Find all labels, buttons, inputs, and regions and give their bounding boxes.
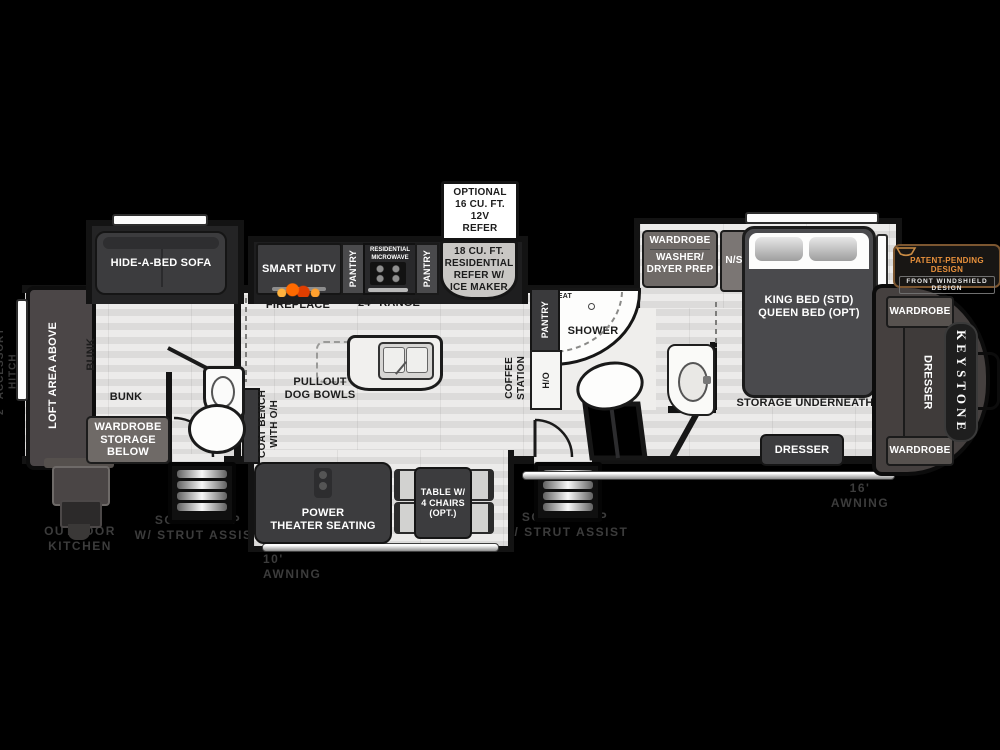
water-heater-label: H/O	[541, 372, 552, 389]
pantry-left-label: PANTRY	[348, 250, 359, 287]
halfbath-toilet-icon	[188, 404, 246, 454]
bedroom-dresser: DRESSER	[760, 434, 844, 466]
storage-underneath-label: STORAGE UNDERNEATH	[730, 397, 880, 410]
optref-line1: OPTIONAL	[453, 187, 506, 199]
bed-line2: QUEEN BED (OPT)	[758, 307, 859, 320]
keystone-logo: KEYSTONE	[944, 322, 978, 442]
optref-line3: 12V	[471, 211, 489, 223]
shower-label: SHOWER	[558, 325, 628, 338]
refrigerator: 18 CU. FT. RESIDENTIAL REFER W/ ICE MAKE…	[440, 240, 518, 300]
table-line3: (OPT.)	[429, 508, 456, 519]
water-heater-box: H/O	[530, 350, 562, 410]
bunk-rear-label: BUNK	[100, 391, 152, 404]
floorplan: LOFT AREA ABOVE 2" ACCESSORY HITCH BUNK …	[0, 0, 1000, 750]
dog-bowls-line2: DOG BOWLS	[285, 389, 356, 402]
table-line1: TABLE W/	[421, 487, 465, 498]
refer-line1: 18 CU. FT.	[454, 246, 504, 258]
dog-bowls-label: PULLOUT DOG BOWLS	[272, 375, 368, 403]
optional-refer-callout: OPTIONAL 16 CU. FT. 12V REFER	[441, 181, 519, 241]
bunk-side-text: BUNK	[85, 338, 98, 371]
bath-pantry-label: PANTRY	[540, 301, 551, 338]
table-line2: 4 CHAIRS	[421, 498, 465, 509]
patent-badge-line2: FRONT WINDSHIELD DESIGN	[899, 276, 995, 294]
fireplace-label: FIREPLACE	[258, 299, 338, 312]
keystone-logo-text: KEYSTONE	[953, 330, 969, 434]
coffee-line2: STATION	[516, 356, 528, 400]
washer-line1: WASHER/	[644, 252, 716, 264]
fireplace-flame-icon	[272, 281, 326, 297]
outdoor-kitchen-nub	[68, 524, 90, 540]
patent-badge: PATENT-PENDING DESIGN FRONT WINDSHIELD D…	[893, 244, 1000, 288]
microwave-line2: MICROWAVE	[371, 255, 408, 261]
theater-line2: THEATER SEATING	[270, 520, 375, 533]
coat-bench-line1: COAT BENCH	[257, 390, 269, 458]
wardrobe-bottom-box: WARDROBE	[886, 436, 954, 466]
awning-16-bar	[522, 471, 895, 480]
optref-line2: 16 CU. FT.	[455, 199, 505, 211]
pantry-right-label: PANTRY	[422, 250, 433, 287]
hide-a-bed-sofa: HIDE-A-BED SOFA	[95, 231, 227, 295]
island-sink-icon	[378, 342, 434, 380]
awning-10-label: 10' AWNING	[263, 552, 343, 582]
range-burners-icon	[370, 262, 406, 285]
sofa-window	[112, 214, 208, 226]
dresser-side-label: DRESSER	[921, 355, 934, 410]
washer-wardrobe-box: WARDROBE WASHER/ DRYER PREP	[642, 230, 718, 288]
theater-line1: POWER	[302, 507, 345, 520]
corner-window	[876, 234, 888, 290]
wardrobe-bottom-label: WARDROBE	[889, 445, 950, 457]
loft-area-label: LOFT AREA ABOVE	[40, 300, 66, 450]
bed-window	[745, 212, 879, 224]
rear-window	[16, 299, 28, 401]
step-right-line2: W/ STRUT ASSIST	[502, 525, 629, 540]
pantry-right: PANTRY	[415, 243, 439, 295]
coat-bench-line2: WITH O/H	[269, 400, 281, 448]
microwave-range: RESIDENTIAL MICROWAVE	[363, 243, 417, 295]
dog-bowls-line1: PULLOUT	[293, 376, 346, 389]
step-left-line2: W/ STRUT ASSIST	[135, 528, 262, 543]
theater-seating: POWER THEATER SEATING	[254, 462, 392, 544]
refer-line4: ICE MAKER	[450, 282, 508, 294]
coffee-station-label: COFFEE STATION	[502, 348, 530, 408]
bedroom-wardrobe-label: WARDROBE	[644, 235, 716, 247]
coffee-line1: COFFEE	[504, 357, 516, 399]
loft-area-text: LOFT AREA ABOVE	[47, 322, 60, 429]
king-bed: KING BED (STD) QUEEN BED (OPT)	[742, 226, 876, 398]
vanity-sink-icon	[667, 344, 715, 416]
bunk-side-label: BUNK	[82, 330, 100, 378]
pillow-right	[809, 237, 857, 261]
smart-hdtv-label: SMART HDTV	[262, 263, 336, 276]
wardrobe-top-box: WARDROBE	[886, 296, 954, 328]
bed-line1: KING BED (STD)	[765, 294, 854, 307]
sofa-label: HIDE-A-BED SOFA	[111, 257, 212, 270]
dinette-table: TABLE W/ 4 CHAIRS (OPT.)	[414, 467, 472, 539]
washer-line2: DRYER PREP	[644, 264, 716, 276]
pantry-left: PANTRY	[341, 243, 365, 295]
bedroom-dresser-label: DRESSER	[775, 444, 830, 457]
outdoor-kitchen-line2: KITCHEN	[48, 539, 112, 554]
optref-line4: REFER	[463, 223, 498, 235]
bath-pantry: PANTRY	[530, 288, 560, 352]
patent-badge-line1: PATENT-PENDING DESIGN	[895, 257, 999, 275]
microwave-line1: RESIDENTIAL	[370, 247, 410, 253]
refer-line2: RESIDENTIAL	[445, 258, 514, 270]
refer-line3: REFER W/	[454, 270, 505, 282]
wardrobe-storage-line3: BELOW	[107, 446, 149, 459]
step-left	[168, 462, 236, 524]
wardrobe-storage-line2: STORAGE	[100, 434, 156, 447]
wardrobe-top-label: WARDROBE	[889, 306, 950, 318]
pillow-left	[755, 237, 803, 261]
awning-16-label: 16' AWNING	[820, 481, 900, 511]
nightstand-label: N/S	[725, 255, 742, 267]
wardrobe-storage-box: WARDROBE STORAGE BELOW	[86, 416, 170, 464]
accessory-hitch-label: 2" ACCESSORY HITCH	[0, 312, 14, 430]
wardrobe-storage-line1: WARDROBE	[95, 421, 162, 434]
range-label: 24" RANGE	[352, 297, 426, 310]
awning-10-bar	[262, 543, 499, 552]
